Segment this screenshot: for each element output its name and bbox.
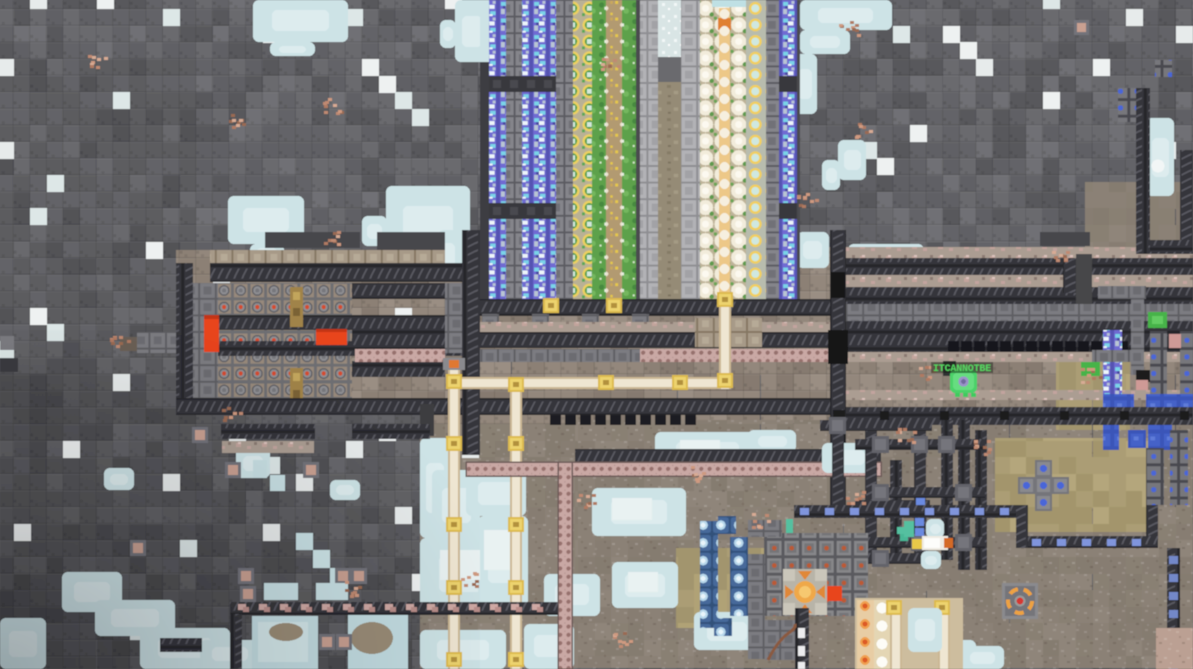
svg-text:ITCANNOTBE: ITCANNOTBE <box>933 364 991 375</box>
